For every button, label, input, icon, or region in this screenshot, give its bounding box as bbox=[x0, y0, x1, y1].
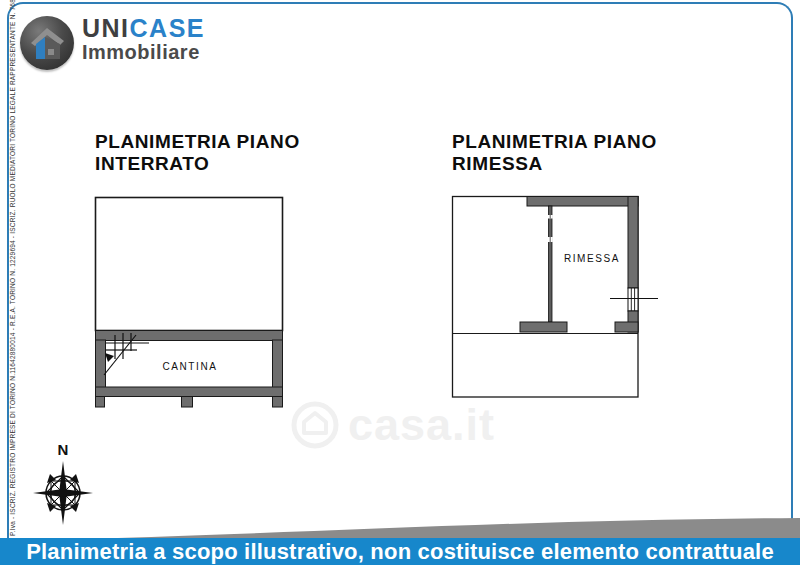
title-right-line1: PLANIMETRIA PIANO bbox=[452, 131, 657, 153]
bottom-stub-left bbox=[96, 397, 105, 408]
cantina-bottom-wall bbox=[96, 387, 283, 397]
watermark-text: casa.it bbox=[348, 399, 495, 451]
rimessa-top-wall bbox=[527, 197, 638, 207]
rimessa-label: RIMESSA bbox=[564, 253, 620, 264]
agency-logo: UNICASE Immobiliare bbox=[20, 16, 205, 70]
rimessa-right-foot bbox=[615, 322, 638, 332]
title-left-line1: PLANIMETRIA PIANO bbox=[95, 131, 300, 153]
floorplan-rimessa: RIMESSA bbox=[450, 194, 662, 400]
interrato-upper-room bbox=[96, 198, 283, 331]
footer-swoosh bbox=[0, 517, 800, 538]
brand-subtitle: Immobiliare bbox=[82, 42, 205, 62]
rimessa-outer-boundary bbox=[453, 197, 639, 398]
bottom-stub-middle bbox=[182, 397, 193, 408]
brand-prefix: UNI bbox=[82, 14, 130, 42]
disclaimer-banner: Planimetria a scopo illustrativo, non co… bbox=[0, 538, 800, 565]
floorplan-interrato: CANTINA bbox=[93, 195, 285, 409]
house-in-circle-icon bbox=[20, 16, 74, 70]
logo-wordmark: UNICASE Immobiliare bbox=[82, 16, 205, 62]
rimessa-bottom-stub bbox=[520, 322, 567, 332]
bottom-stub-right bbox=[273, 397, 283, 408]
brand-suffix: CASE bbox=[130, 14, 205, 42]
casa-it-watermark: casa.it bbox=[290, 399, 495, 451]
title-piano-interrato: PLANIMETRIA PIANO INTERRATO bbox=[95, 131, 300, 174]
rimessa-right-wall-upper bbox=[628, 197, 638, 289]
compass-north-label: N bbox=[58, 441, 69, 458]
title-piano-rimessa: PLANIMETRIA PIANO RIMESSA bbox=[452, 131, 657, 174]
casa-house-logo-icon bbox=[290, 400, 340, 450]
title-right-line2: RIMESSA bbox=[452, 153, 657, 175]
compass-rose bbox=[33, 461, 93, 525]
disclaimer-text: Planimetria a scopo illustrativo, non co… bbox=[26, 539, 774, 565]
flyer-page: UNICASE Immobiliare P.Iva - ISCRIZ. REGI… bbox=[0, 0, 800, 565]
legal-registry-note: P.Iva - ISCRIZ. REGISTRO IMPRESE DI TORI… bbox=[9, 62, 21, 536]
house-glyph bbox=[20, 16, 74, 70]
cantina-label: CANTINA bbox=[162, 361, 217, 372]
title-left-line2: INTERRATO bbox=[95, 153, 300, 175]
thin-partition-wall bbox=[548, 206, 553, 322]
